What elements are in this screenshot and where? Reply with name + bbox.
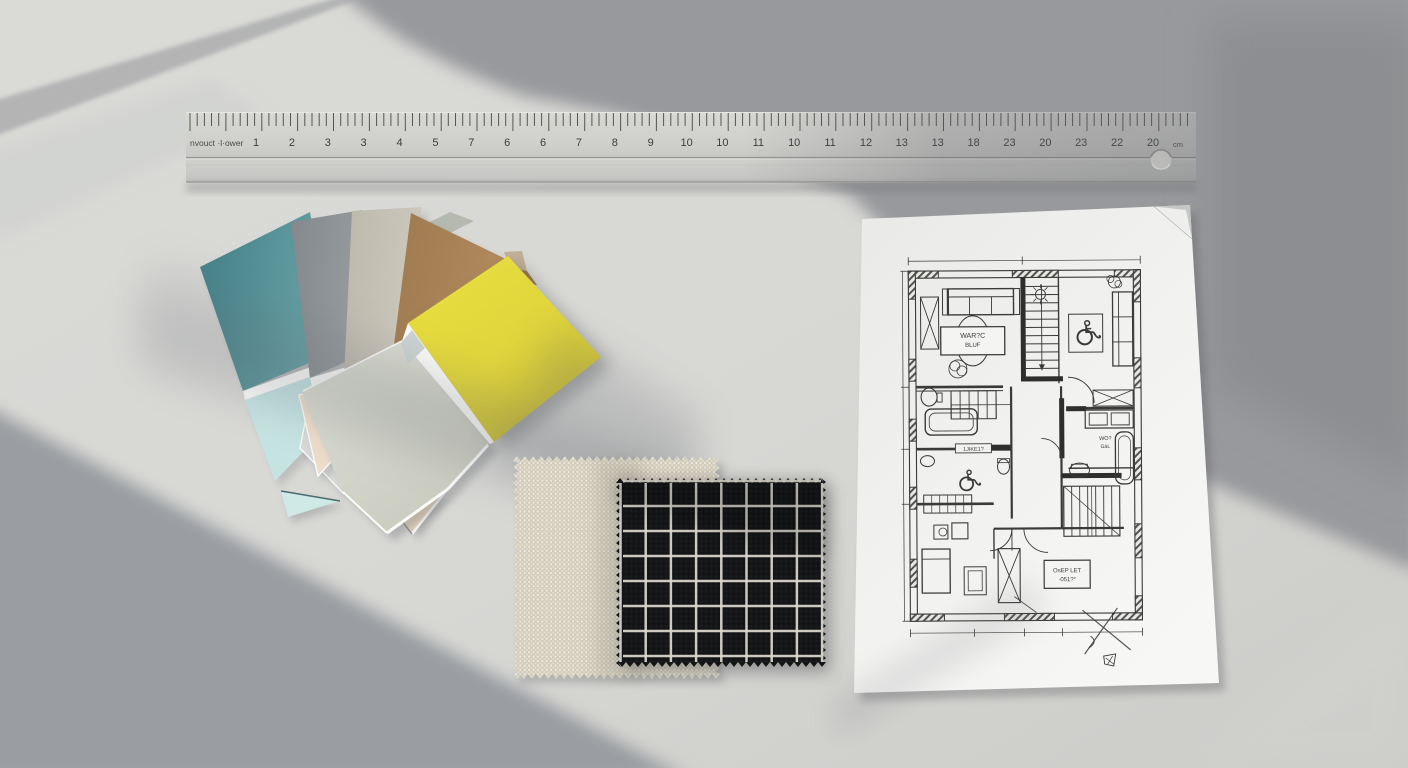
svg-text:GàL: GàL [1101,444,1111,450]
svg-text:WAR?C: WAR?C [960,333,985,340]
svg-text:WO?: WO? [1099,436,1112,442]
svg-text:1JIKE1?: 1JIKE1? [963,447,984,453]
svg-text:·051?°: ·051?° [1058,577,1076,583]
svg-text:BLUF: BLUF [965,343,981,349]
svg-text:OsEP LET: OsEP LET [1053,568,1082,574]
